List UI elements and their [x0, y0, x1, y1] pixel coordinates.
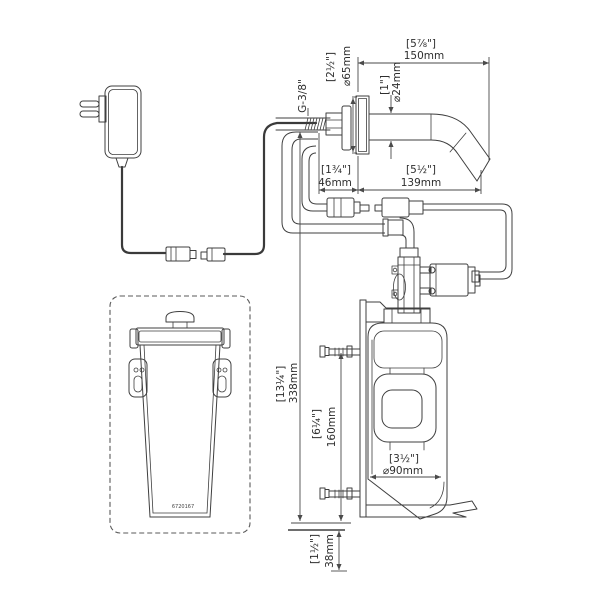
refill-box	[110, 296, 250, 533]
dim-top-reach-inch-label: [5⅞"]	[406, 38, 436, 50]
mounting-screw-top	[320, 346, 360, 357]
dim-mid-mm-label: 160mm	[326, 407, 338, 448]
mounting-screw-bottom	[320, 488, 360, 499]
dim-flange-mm-label: ⌀65mm	[341, 46, 353, 86]
wall-bracket	[360, 300, 477, 517]
refill-bottle: 6720167	[129, 312, 231, 518]
dim-reach-mm-label: 139mm	[401, 177, 442, 189]
dim-mid-inch-label: [6¼"]	[311, 409, 323, 439]
refill-ear-left	[129, 359, 147, 397]
elbow-fitting	[383, 218, 418, 257]
refill-ear-right	[213, 359, 231, 397]
dim-spout-dia-mm-label: ⌀24mm	[391, 62, 403, 102]
sensor-cable-connectors	[327, 198, 423, 217]
dim-bottle-dia-mm-label: ⌀90mm	[383, 465, 423, 477]
power-adapter	[80, 86, 141, 167]
dim-shank-inch-label: [1¾"]	[321, 164, 351, 176]
power-cable	[122, 123, 316, 254]
pump-motor	[430, 264, 480, 296]
diagram-canvas: 6720167 G-3/8" [2	[0, 0, 600, 600]
dc-connector-pair	[166, 247, 225, 261]
dim-flange-inch-label: [2½"]	[325, 52, 337, 82]
dispenser-bottle	[368, 323, 447, 519]
dim-thread-label: G-3/8"	[297, 79, 309, 113]
dim-height-inch-label: [13¼"]	[275, 366, 287, 403]
dim-bottom-mm-label: 38mm	[324, 534, 336, 568]
soap-pump	[392, 257, 435, 313]
dimension-lines	[288, 57, 489, 571]
dim-height-mm-label: 338mm	[288, 363, 300, 404]
dim-bottle-dia-inch-label: [3½"]	[389, 453, 419, 465]
dim-spout-dia-inch-label: [1"]	[379, 75, 391, 95]
dim-bottom-inch-label: [1½"]	[309, 534, 321, 564]
plug-pins-icon	[80, 101, 99, 117]
refill-bottle-code: 6720167	[172, 504, 194, 510]
drip-tray	[360, 501, 477, 517]
dim-shank-mm-label: 46mm	[318, 177, 352, 189]
dim-reach-inch-label: [5½"]	[406, 164, 436, 176]
dim-top-reach-mm-label: 150mm	[404, 50, 445, 62]
installation-diagram: 6720167 G-3/8" [2	[0, 0, 600, 600]
